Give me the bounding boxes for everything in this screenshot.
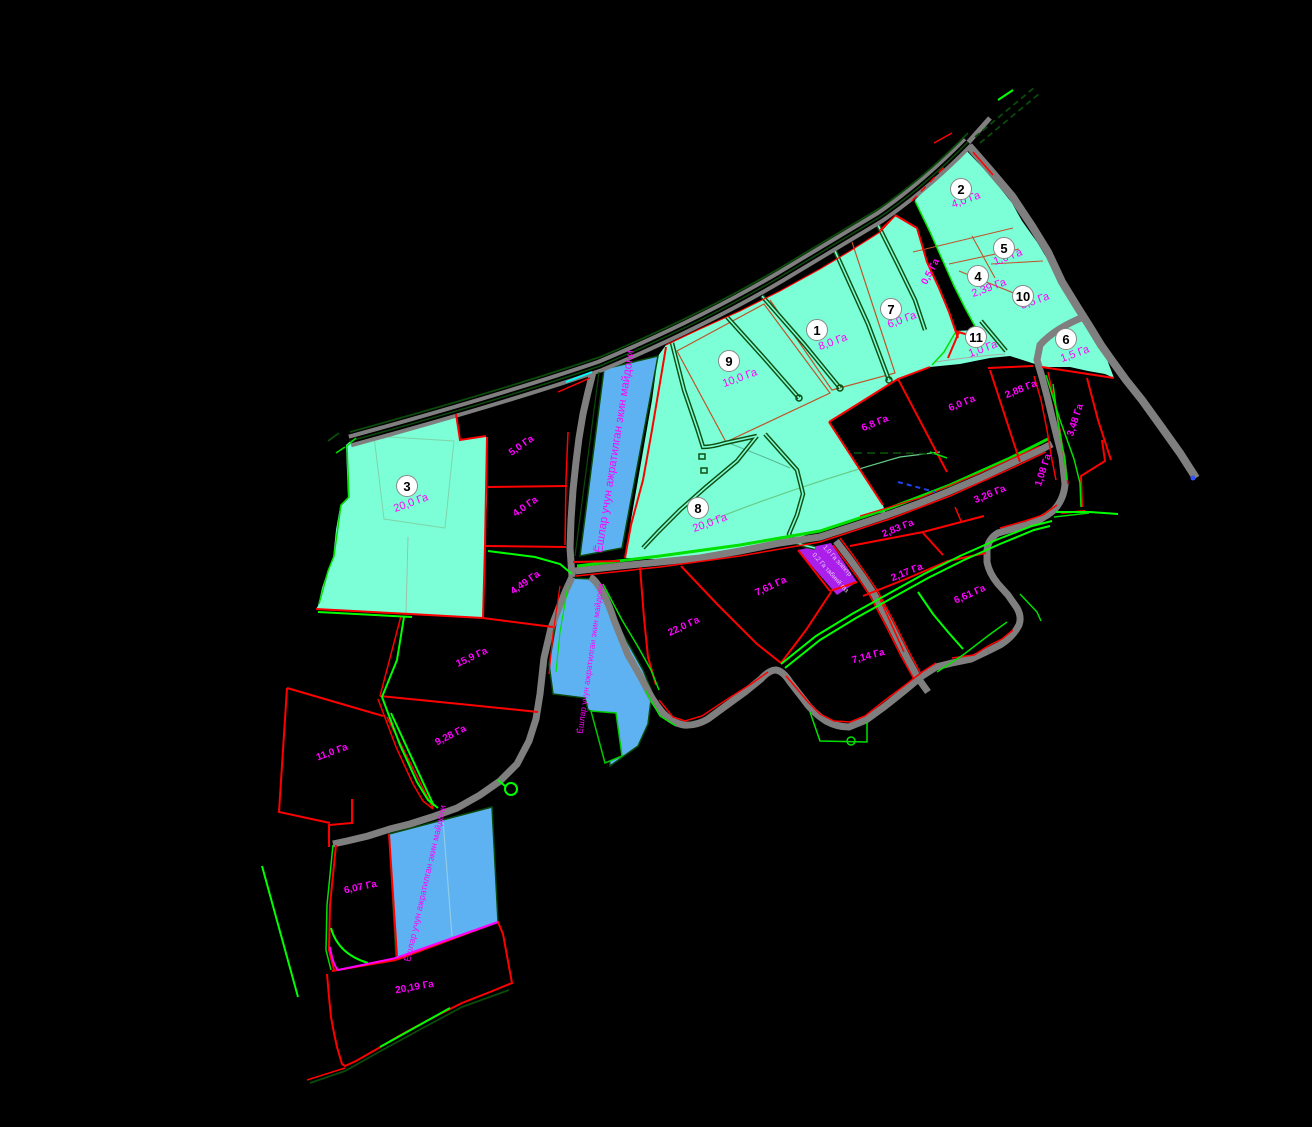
svg-text:5: 5 <box>1000 241 1007 256</box>
svg-text:2: 2 <box>957 182 964 197</box>
svg-text:1: 1 <box>813 323 820 338</box>
svg-text:8: 8 <box>694 501 701 516</box>
svg-text:7: 7 <box>887 302 894 317</box>
svg-text:10: 10 <box>1016 289 1030 304</box>
svg-text:4: 4 <box>974 269 982 284</box>
svg-text:3: 3 <box>403 479 410 494</box>
svg-text:11: 11 <box>969 330 983 345</box>
svg-text:6: 6 <box>1062 332 1069 347</box>
svg-text:9: 9 <box>725 354 732 369</box>
